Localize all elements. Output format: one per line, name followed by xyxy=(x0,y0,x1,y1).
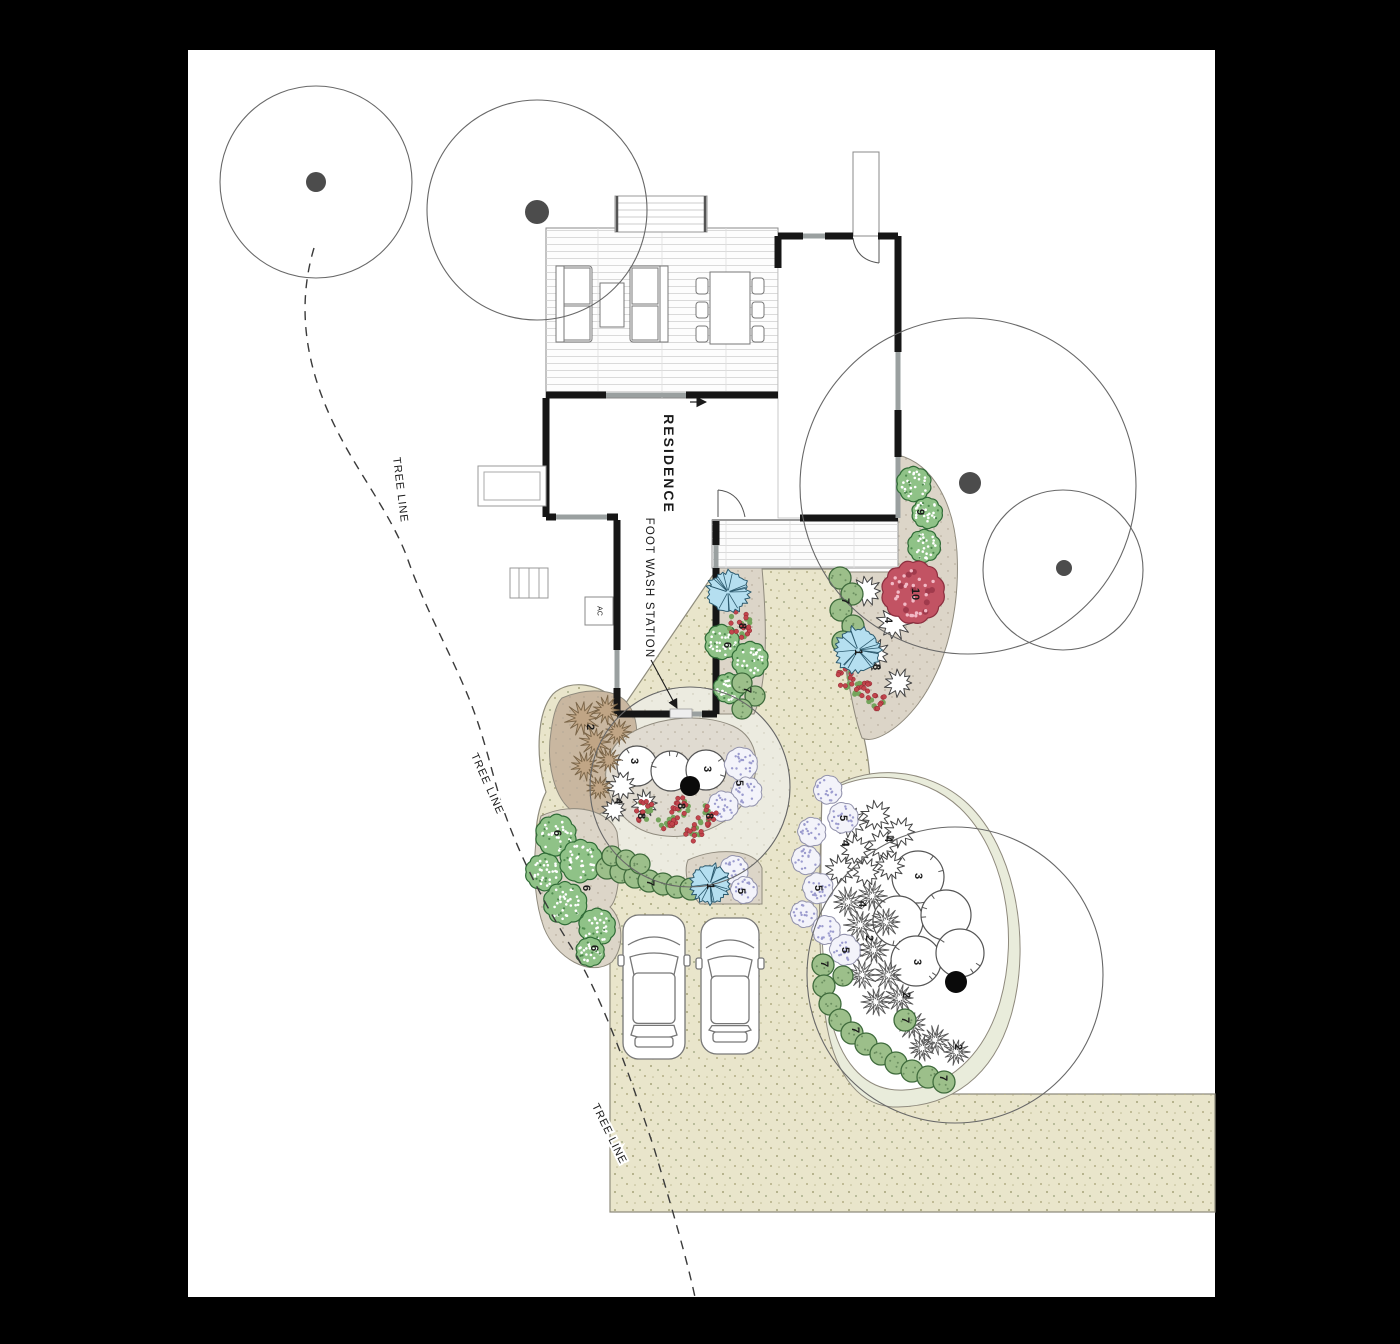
plant-count-label: 7 xyxy=(741,687,753,693)
plant-count-label: 4 xyxy=(882,836,894,843)
site-plan-canvas: RESIDENCEFOOT WASH STATIONTREE LINETREE … xyxy=(0,0,1400,1344)
plant-count-label: 5 xyxy=(839,947,851,953)
plant-count-label: 9 xyxy=(914,509,926,515)
plant-count-label: 5 xyxy=(837,815,849,821)
plant-lavender-dotted xyxy=(798,817,826,846)
proposed-tree-trunk xyxy=(945,971,967,993)
plant-count-label: 8 xyxy=(703,813,715,819)
chair xyxy=(696,302,708,318)
entry-wall-element xyxy=(853,152,879,236)
coffee-table xyxy=(600,283,624,327)
right-room xyxy=(778,236,898,518)
dining-table xyxy=(710,272,750,344)
plant-count-label: 6 xyxy=(588,945,600,951)
ac-unit-label: AC xyxy=(596,606,603,616)
chair xyxy=(696,326,708,342)
plant-count-label: 7 xyxy=(899,1017,911,1023)
existing-tree-trunk xyxy=(959,472,981,494)
foot-wash-station-label: FOOT WASH STATION xyxy=(643,518,655,659)
plant-count-label: 3 xyxy=(912,873,924,879)
plant-count-label: 1 xyxy=(852,649,864,655)
plant-count-label: 8 xyxy=(635,813,647,819)
plant-count-label: 7 xyxy=(839,598,851,604)
plant-count-label: 4 xyxy=(856,901,868,908)
plant-count-label: 3 xyxy=(911,959,923,965)
deck-stairs xyxy=(615,196,707,232)
plant-lavender-dotted xyxy=(813,775,841,804)
plant-count-label: 1 xyxy=(704,883,716,889)
plant-count-label: 2 xyxy=(584,724,596,730)
plant-count-label: 8 xyxy=(675,803,687,809)
plant-green-shrub xyxy=(560,839,602,882)
plant-groundcover-circle xyxy=(833,966,853,986)
landscape-plan-drawing: RESIDENCEFOOT WASH STATIONTREE LINETREE … xyxy=(0,0,1400,1344)
plant-count-label: 7 xyxy=(937,1075,949,1081)
plant-count-label: 7 xyxy=(644,880,656,886)
existing-tree-trunk xyxy=(1056,560,1072,576)
plant-count-label: 7 xyxy=(849,1027,861,1033)
residence-label: RESIDENCE xyxy=(661,414,677,514)
plant-count-label: 6 xyxy=(551,830,563,836)
proposed-tree-trunk xyxy=(680,776,700,796)
plant-count-label: 7 xyxy=(818,961,830,967)
chair xyxy=(752,326,764,342)
plant-groundcover-circle xyxy=(630,854,650,874)
plant-count-label: 4 xyxy=(612,798,624,805)
plant-count-label: 4 xyxy=(882,617,894,624)
parked-car xyxy=(618,915,690,1059)
plant-green-shrub xyxy=(908,529,941,562)
chair xyxy=(752,278,764,294)
plant-count-label: 2 xyxy=(952,1044,964,1050)
plant-round-shrub-white xyxy=(936,929,984,977)
plant-count-label: 5 xyxy=(812,885,824,891)
plant-count-label: 10 xyxy=(909,588,921,600)
plant-count-label: 8 xyxy=(736,623,748,629)
plant-count-label: 3 xyxy=(628,758,640,764)
side-steps xyxy=(510,568,548,598)
plant-count-label: 4 xyxy=(839,840,851,847)
plant-lavender-dotted xyxy=(724,747,757,780)
plant-green-shrub xyxy=(732,641,768,678)
plant-green-shrub xyxy=(897,466,931,501)
plant-count-label: 2 xyxy=(863,935,875,941)
plant-count-label: 5 xyxy=(735,888,747,894)
plant-count-label: 3 xyxy=(701,766,713,772)
furniture xyxy=(556,266,764,344)
plant-count-label: 5 xyxy=(733,780,745,786)
chair xyxy=(696,278,708,294)
plant-count-label: 6 xyxy=(721,642,733,648)
plant-count-label: 8 xyxy=(870,664,882,670)
existing-tree-trunk xyxy=(525,200,549,224)
foot-wash-station-fixture xyxy=(670,709,692,718)
chair xyxy=(752,302,764,318)
existing-tree-trunk xyxy=(306,172,326,192)
parked-car xyxy=(696,918,764,1054)
plant-count-label: 2 xyxy=(900,992,912,998)
plant-count-label: 6 xyxy=(580,885,592,891)
